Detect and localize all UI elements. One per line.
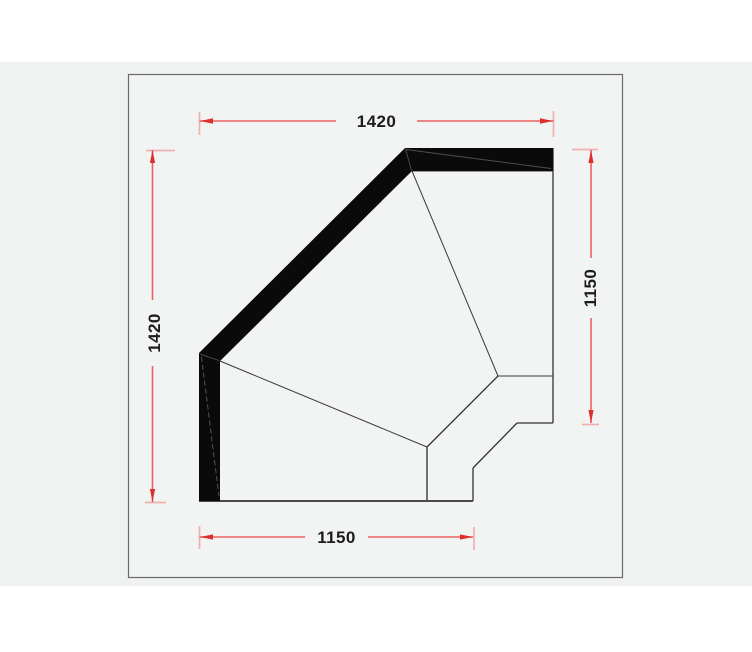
drawing-canvas: 1420 1420 1150 (0, 0, 752, 652)
background (0, 0, 752, 652)
corner-counter-technical-drawing: 1420 1420 1150 (0, 0, 752, 652)
dim-label-right: 1150 (581, 269, 600, 307)
dim-label-bottom: 1150 (317, 528, 355, 547)
dim-label-left: 1420 (145, 313, 164, 352)
dim-label-top: 1420 (357, 112, 396, 131)
